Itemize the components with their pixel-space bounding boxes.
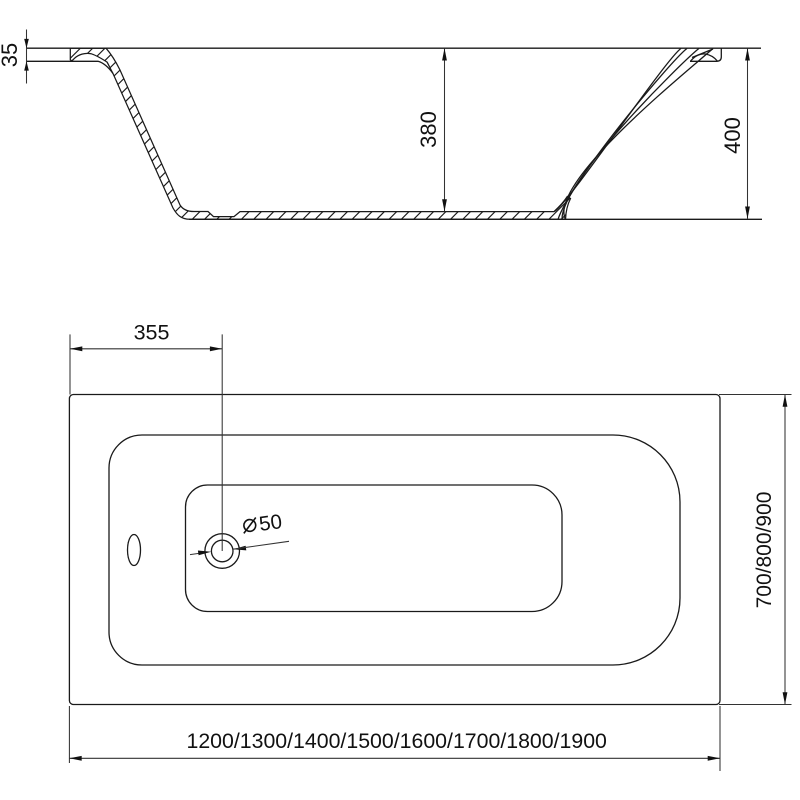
svg-text:400: 400 [720, 117, 745, 154]
svg-text:1200/1300/1400/1500/1600/1700/: 1200/1300/1400/1500/1600/1700/1800/1900 [186, 729, 607, 753]
svg-text:35: 35 [0, 43, 22, 67]
svg-text:355: 355 [134, 321, 170, 345]
svg-text:50: 50 [258, 510, 284, 536]
svg-text:380: 380 [416, 111, 441, 148]
svg-text:700/800/900: 700/800/900 [753, 492, 776, 609]
